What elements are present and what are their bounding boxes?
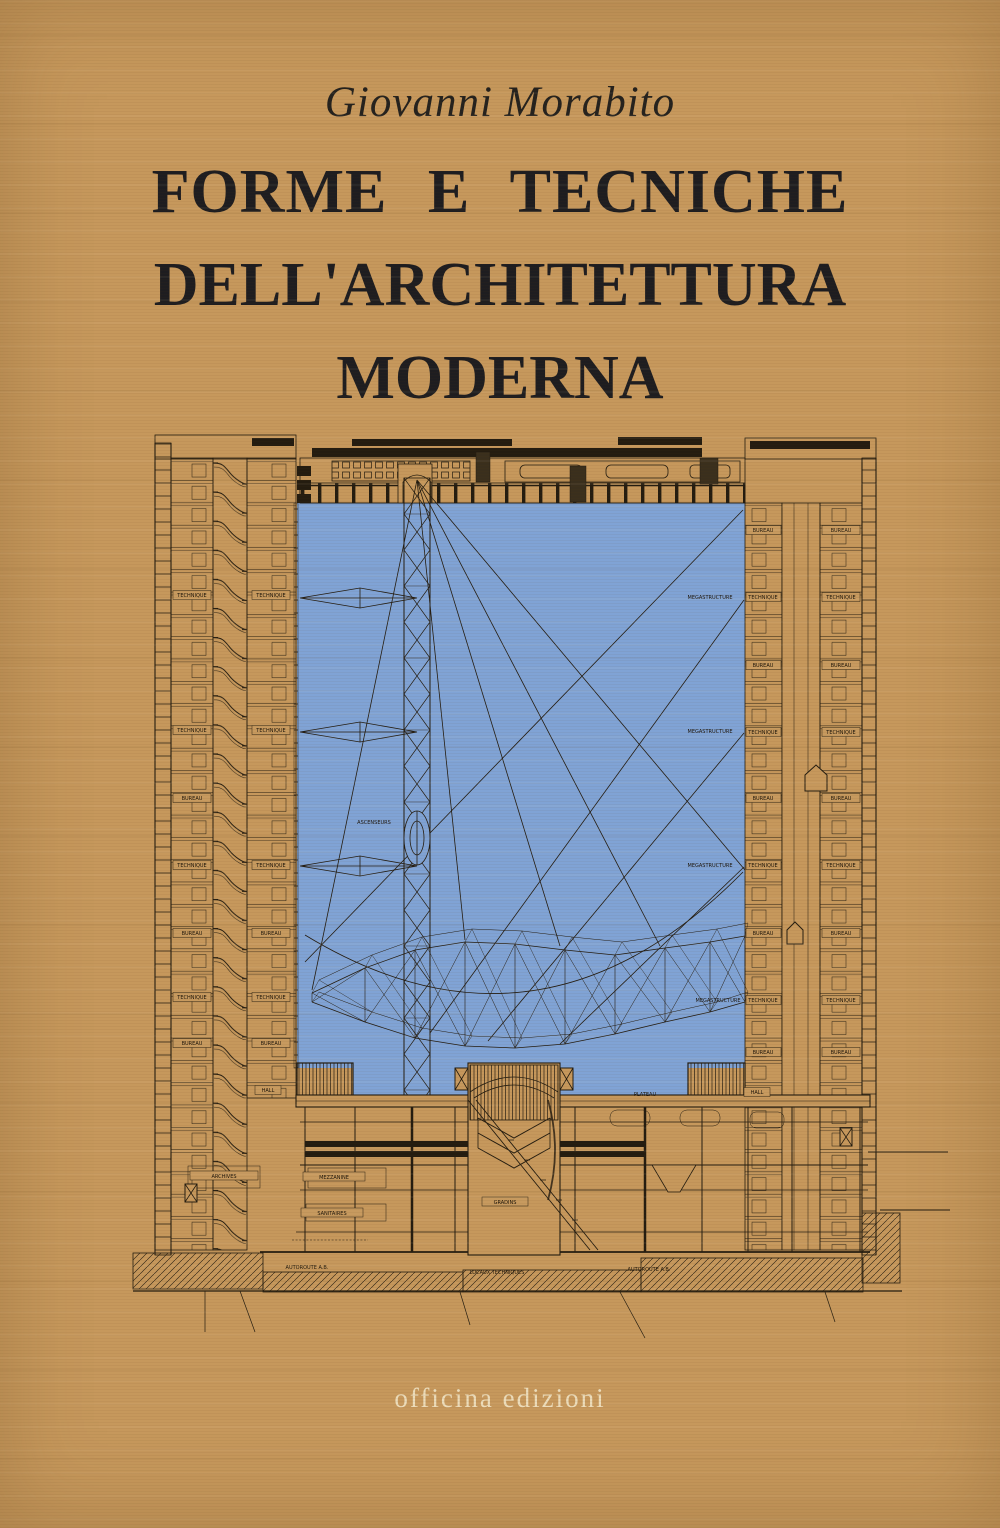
room-label: TECHNIQUE [825,863,855,869]
podium-labels: PLATEAU ARCHIVES MEZZANINE SANITAIRES GR… [190,1092,671,1276]
room-label: BUREAU [831,931,852,937]
megastructure-label: MEGASTRUCTURE [688,595,733,601]
room-label: TECHNIQUE [255,593,285,599]
room-label: HALL [751,1090,764,1096]
room-label: TECHNIQUE [825,998,855,1004]
room-label: BUREAU [831,1050,852,1056]
megastructure-label: MEGASTRUCTURE [696,998,741,1004]
book-title: FORME E TECNICHE DELL'ARCHITETTURA MODER… [0,146,1000,425]
megastructure-label: MEGASTRUCTURE [688,729,733,735]
room-label: BUREAU [753,931,774,937]
crossed-box-icon [455,1068,468,1090]
elevator-label: ASCENSEURS [357,820,391,826]
room-label: BUREAU [182,796,203,802]
room-label: BUREAU [753,796,774,802]
roof-mechanical-level [297,437,745,503]
crossed-box-icon [560,1068,573,1090]
room-label: BUREAU [261,931,282,937]
room-label: PLATEAU [634,1092,657,1098]
room-label: TECHNIQUE [825,595,855,601]
crossed-box-icon [185,1184,197,1202]
title-line-1: FORME E TECNICHE [0,146,1000,239]
room-label: BUREAU [753,1050,774,1056]
right-tower [745,438,876,1255]
room-label: MEZZANINE [319,1175,349,1181]
room-label: GRADINS [494,1200,517,1206]
room-label: BUREAU [182,931,203,937]
room-label: TECHNIQUE [825,730,855,736]
room-label: LOCAUX TECHNIQUES [470,1270,525,1276]
room-label: TECHNIQUE [255,728,285,734]
room-label: BUREAU [831,796,852,802]
left-tower [155,435,298,1255]
room-label: SANITAIRES [317,1211,346,1217]
room-label: ARCHIVES [211,1174,236,1180]
megastructure-label: MEGASTRUCTURE [688,863,733,869]
room-label: TECHNIQUE [176,995,206,1001]
room-label: BUREAU [831,528,852,534]
room-label: TECHNIQUE [747,595,777,601]
central-mast [404,478,430,1100]
room-label: TECHNIQUE [747,998,777,1004]
title-line-2: DELL'ARCHITETTURA MODERNA [0,239,1000,425]
publisher-name: officina edizioni [0,1383,1000,1414]
room-label: BUREAU [261,1041,282,1047]
room-label: TECHNIQUE [255,995,285,1001]
room-label: TECHNIQUE [255,863,285,869]
crossed-box-icon [840,1128,852,1146]
room-label: TECHNIQUE [747,730,777,736]
room-label: AUTOROUTE A.B. [286,1265,329,1271]
room-label: HALL [262,1088,275,1094]
room-label: TECHNIQUE [176,863,206,869]
room-label: AUTOROUTE A.B. [628,1267,671,1273]
room-label: TECHNIQUE [747,863,777,869]
room-label: BUREAU [831,663,852,669]
room-label: BUREAU [753,528,774,534]
room-label: TECHNIQUE [176,593,206,599]
room-label: BUREAU [753,663,774,669]
central-void [297,503,745,1099]
author-name: Giovanni Morabito [0,78,1000,127]
hall-volume [297,1063,353,1097]
room-label: BUREAU [182,1041,203,1047]
hall-volume [688,1063,745,1097]
room-label: TECHNIQUE [176,728,206,734]
